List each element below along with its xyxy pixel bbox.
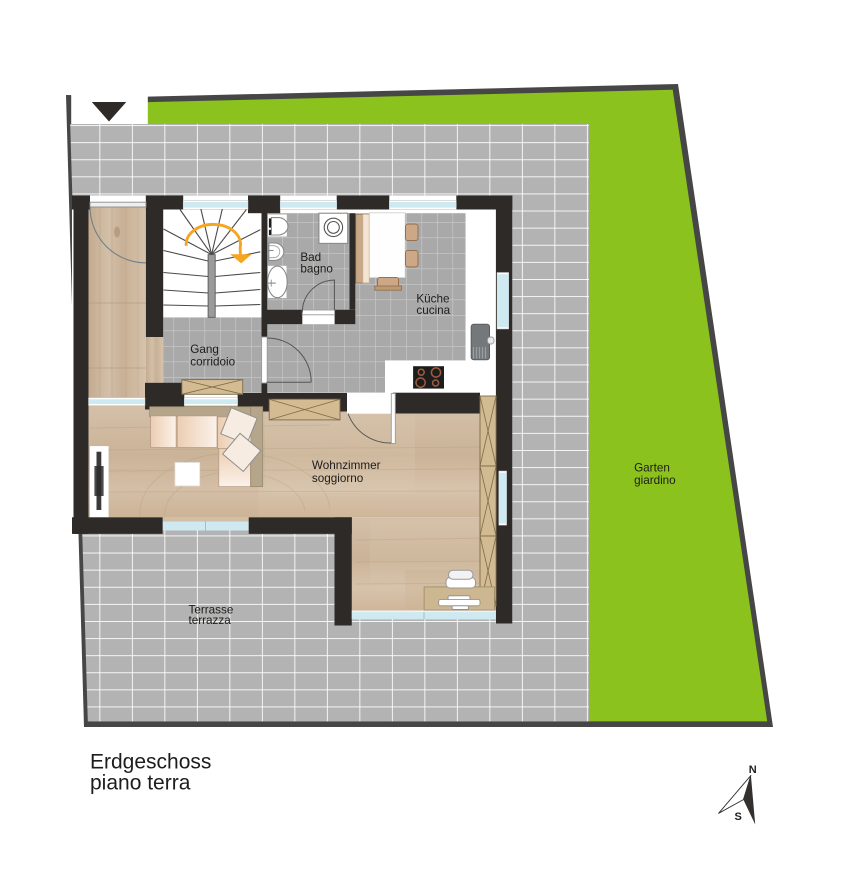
svg-text:N: N (749, 764, 757, 776)
svg-text:giardino: giardino (634, 474, 676, 487)
svg-text:soggiorno: soggiorno (312, 472, 364, 485)
svg-text:bagno: bagno (300, 262, 333, 275)
svg-text:Wohnzimmer: Wohnzimmer (312, 459, 381, 472)
svg-text:piano terra: piano terra (90, 772, 191, 795)
svg-text:Erdgeschoss: Erdgeschoss (90, 751, 211, 774)
svg-text:corridoio: corridoio (190, 355, 235, 368)
svg-text:terrazza: terrazza (189, 614, 232, 627)
svg-text:Garten: Garten (634, 462, 670, 475)
svg-text:Gang: Gang (190, 343, 219, 356)
svg-text:S: S (735, 811, 742, 823)
svg-text:cucina: cucina (416, 304, 450, 317)
